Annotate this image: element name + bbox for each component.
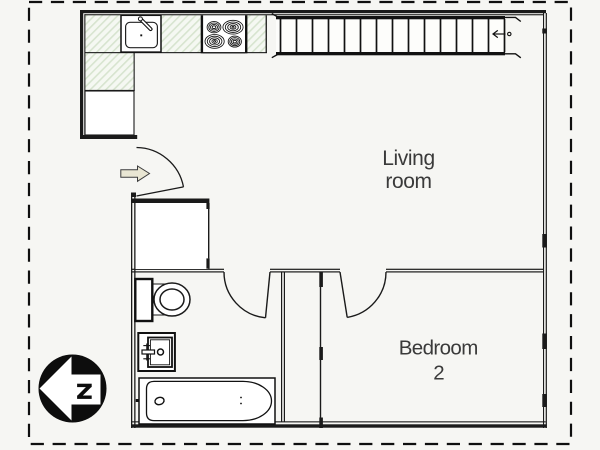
svg-text:2: 2 <box>433 362 444 385</box>
svg-text:Living: Living <box>382 147 434 170</box>
svg-text:Bedroom: Bedroom <box>399 337 478 360</box>
svg-text:room: room <box>385 170 431 193</box>
